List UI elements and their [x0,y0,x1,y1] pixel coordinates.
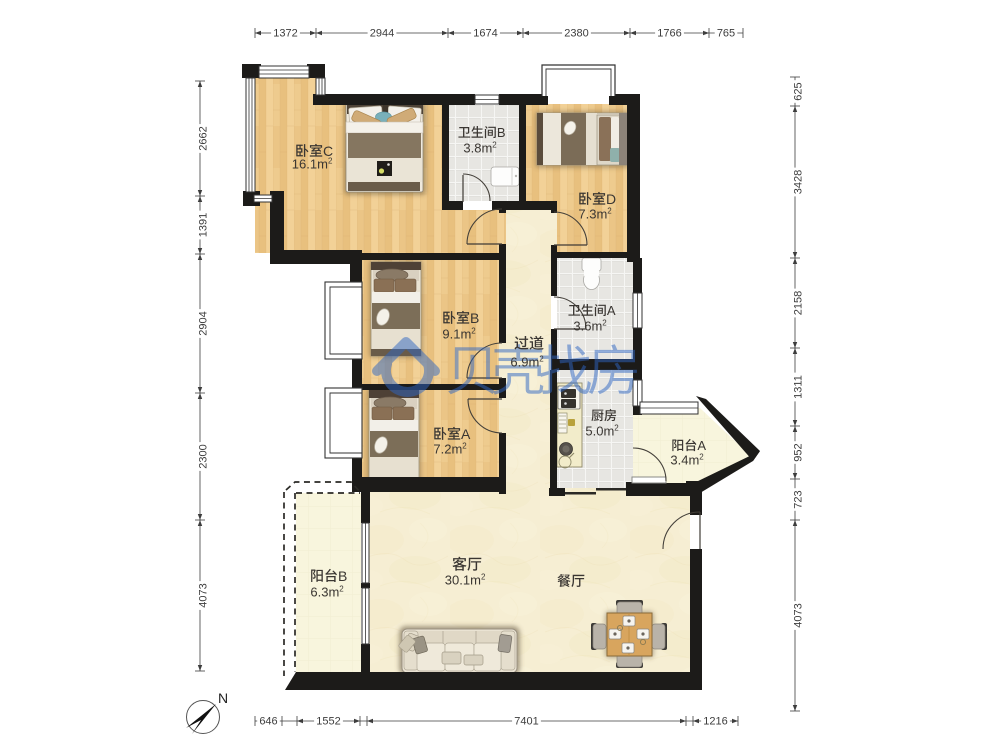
svg-text:A: A [697,438,706,453]
svg-text:2300: 2300 [197,444,209,468]
svg-text:4073: 4073 [197,583,209,607]
svg-text:7401: 7401 [514,716,538,728]
svg-text:30.1m2: 30.1m2 [445,573,486,588]
svg-text:6.3m2: 6.3m2 [310,585,344,600]
svg-text:B: B [497,125,506,140]
svg-text:625: 625 [792,82,804,100]
svg-text:D: D [606,191,616,207]
svg-text:1311: 1311 [792,375,804,399]
svg-text:B: B [338,568,347,584]
svg-text:7.3m2: 7.3m2 [578,207,612,222]
svg-text:1372: 1372 [273,28,297,40]
svg-text:1552: 1552 [316,716,340,728]
svg-text:1766: 1766 [657,28,681,40]
svg-text:952: 952 [792,443,804,461]
svg-text:B: B [470,310,479,326]
svg-text:4073: 4073 [792,603,804,627]
svg-text:2904: 2904 [197,311,209,335]
svg-text:646: 646 [259,716,277,728]
svg-text:5.0m2: 5.0m2 [585,424,619,439]
svg-text:3.8m2: 3.8m2 [463,141,497,156]
svg-text:2158: 2158 [792,291,804,315]
svg-text:7.2m2: 7.2m2 [433,442,467,457]
svg-text:2944: 2944 [370,28,394,40]
svg-text:N: N [218,690,228,706]
svg-text:1216: 1216 [703,716,727,728]
svg-text:3.6m2: 3.6m2 [573,319,607,334]
svg-text:2380: 2380 [564,28,588,40]
svg-text:6.9m2: 6.9m2 [510,355,544,370]
svg-text:16.1m2: 16.1m2 [292,157,333,172]
svg-text:1391: 1391 [197,213,209,237]
svg-text:1674: 1674 [473,28,497,40]
svg-text:A: A [607,303,616,318]
svg-text:9.1m2: 9.1m2 [442,327,476,342]
svg-text:A: A [461,426,471,442]
svg-text:3.4m2: 3.4m2 [670,453,704,468]
svg-text:3428: 3428 [792,170,804,194]
svg-text:765: 765 [717,28,735,40]
svg-text:723: 723 [792,490,804,508]
svg-text:2662: 2662 [197,126,209,150]
